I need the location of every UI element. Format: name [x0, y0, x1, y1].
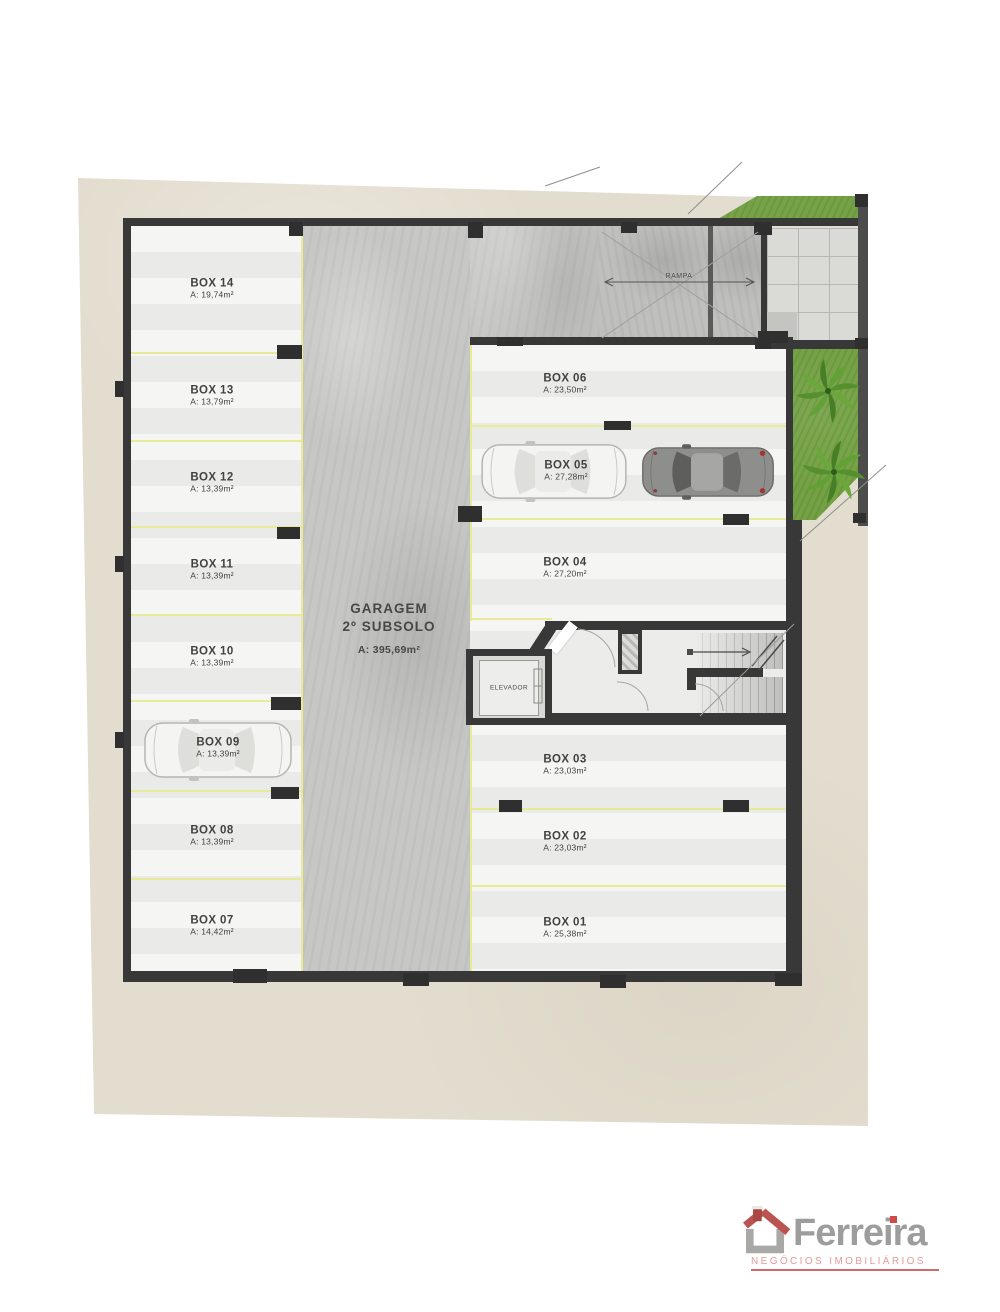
stall-label-box04: BOX 04A: 27,20m² — [543, 557, 587, 580]
column — [499, 800, 522, 812]
column — [277, 527, 300, 539]
column — [271, 787, 299, 799]
stall-label-box06: BOX 06A: 23,50m² — [543, 373, 587, 396]
stall-label-box05: BOX 05A: 27,28m² — [544, 460, 588, 483]
logo-i-dot — [890, 1216, 897, 1223]
stair-flight-lower — [695, 677, 783, 713]
wall-bottom — [123, 971, 802, 982]
column — [755, 338, 771, 349]
core-wall-right — [786, 621, 802, 725]
stall-divider — [470, 345, 472, 621]
stall-divider — [131, 614, 301, 616]
elevator-label: ELEVADOR — [490, 685, 528, 692]
logo-house-icon — [737, 1206, 793, 1256]
core-wall-top — [545, 621, 802, 630]
stall-divider — [131, 526, 301, 528]
stall-label-box14: BOX 14A: 19,74m² — [190, 278, 234, 301]
stall-divider — [131, 352, 301, 354]
column — [115, 381, 124, 397]
stall-label-box12: BOX 12A: 13,39m² — [190, 472, 234, 495]
stall-divider — [470, 618, 552, 620]
column — [604, 421, 631, 430]
stall-label-box10: BOX 10A: 13,39m² — [190, 646, 234, 669]
vent-shaft — [618, 630, 642, 674]
stall-label-box02: BOX 02A: 23,03m² — [543, 831, 587, 854]
column — [271, 697, 301, 710]
stall-label-box09: BOX 09A: 13,39m² — [196, 737, 240, 760]
stall-label-box03: BOX 03A: 23,03m² — [543, 754, 587, 777]
stall-divider — [131, 878, 301, 880]
column — [855, 338, 868, 349]
column — [115, 732, 124, 748]
maneuver-area — [470, 226, 598, 337]
wall-ramp-divider — [708, 226, 713, 341]
wall-patio-left — [761, 226, 767, 343]
ramp-area — [598, 226, 709, 341]
palm-tree-1 — [790, 353, 866, 429]
logo-underline — [751, 1269, 939, 1271]
logo-brand: Ferreira — [793, 1214, 927, 1252]
stall-divider — [470, 885, 786, 887]
stall-divider — [301, 226, 303, 971]
wall-right-lower — [786, 520, 802, 982]
stall-label-box11: BOX 11A: 13,39m² — [190, 559, 234, 582]
column — [468, 222, 483, 238]
stair-flight-upper — [695, 633, 783, 669]
column — [723, 800, 749, 812]
stall-divider — [131, 440, 301, 442]
column — [723, 514, 749, 525]
column — [621, 222, 637, 233]
ramp-landing — [713, 226, 761, 341]
palm-tree-2 — [796, 434, 872, 510]
left-stalls-floor — [131, 226, 302, 971]
column — [115, 556, 124, 572]
stall-label-box08: BOX 08A: 13,39m² — [190, 825, 234, 848]
driveway — [302, 226, 470, 971]
column — [600, 975, 626, 988]
column — [853, 513, 866, 523]
core-wall-bottom — [549, 713, 802, 725]
column — [233, 969, 267, 983]
column — [775, 973, 802, 986]
wall-left — [123, 218, 131, 982]
column — [458, 506, 482, 522]
garage-title: GARAGEM 2º SUBSOLO A: 395,69m² — [343, 600, 436, 656]
logo-tagline: NEGÓCIOS IMOBILIÁRIOS — [751, 1256, 926, 1267]
stall-label-box13: BOX 13A: 13,79m² — [190, 385, 234, 408]
column — [289, 222, 303, 236]
column — [855, 194, 868, 207]
column — [277, 345, 302, 359]
company-logo: Ferreira NEGÓCIOS IMOBILIÁRIOS — [735, 1200, 945, 1272]
column — [497, 337, 523, 346]
stall-label-box07: BOX 07A: 14,42m² — [190, 915, 234, 938]
car-gray-box05 — [641, 441, 775, 503]
stair-landing-rail — [687, 668, 696, 690]
column — [403, 973, 429, 986]
stall-divider — [470, 725, 472, 971]
stair-landing-rail — [687, 668, 763, 677]
column — [754, 222, 772, 235]
stall-label-box01: BOX 01A: 25,38m² — [543, 917, 587, 940]
floor-plan-page: RAMPA — [0, 0, 1000, 1312]
